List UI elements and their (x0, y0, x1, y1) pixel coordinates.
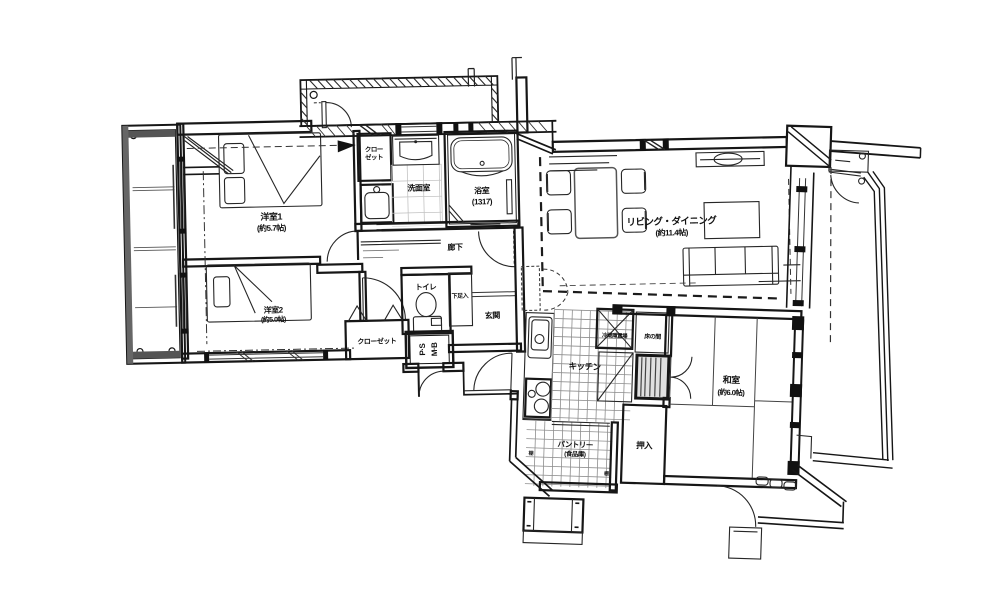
svg-text:押入: 押入 (636, 440, 653, 451)
svg-text:(1317): (1317) (472, 197, 493, 206)
svg-text:キッチン: キッチン (568, 361, 601, 372)
svg-text:洗面室: 洗面室 (407, 182, 430, 192)
svg-text:和室: 和室 (722, 374, 741, 386)
svg-text:(約11.4帖): (約11.4帖) (655, 227, 688, 238)
svg-text:(約6.0帖): (約6.0帖) (717, 387, 745, 398)
svg-text:棚: 棚 (528, 450, 533, 457)
svg-text:玄関: 玄関 (485, 310, 501, 320)
svg-text:クロー: クロー (365, 144, 383, 153)
svg-text:廊下: 廊下 (447, 242, 463, 252)
svg-text:洋室2: 洋室2 (264, 305, 284, 315)
svg-text:浴室: 浴室 (474, 185, 490, 195)
svg-text:トイレ: トイレ (415, 282, 436, 291)
svg-text:洋室1: 洋室1 (260, 211, 282, 222)
svg-text:(約5.7帖): (約5.7帖) (257, 222, 287, 233)
svg-text:パントリー: パントリー (557, 439, 593, 450)
svg-text:棚: 棚 (604, 470, 609, 477)
svg-text:M·B: M·B (430, 342, 439, 357)
svg-text:ゼット: ゼット (365, 152, 383, 161)
svg-text:P·S: P·S (418, 342, 427, 355)
